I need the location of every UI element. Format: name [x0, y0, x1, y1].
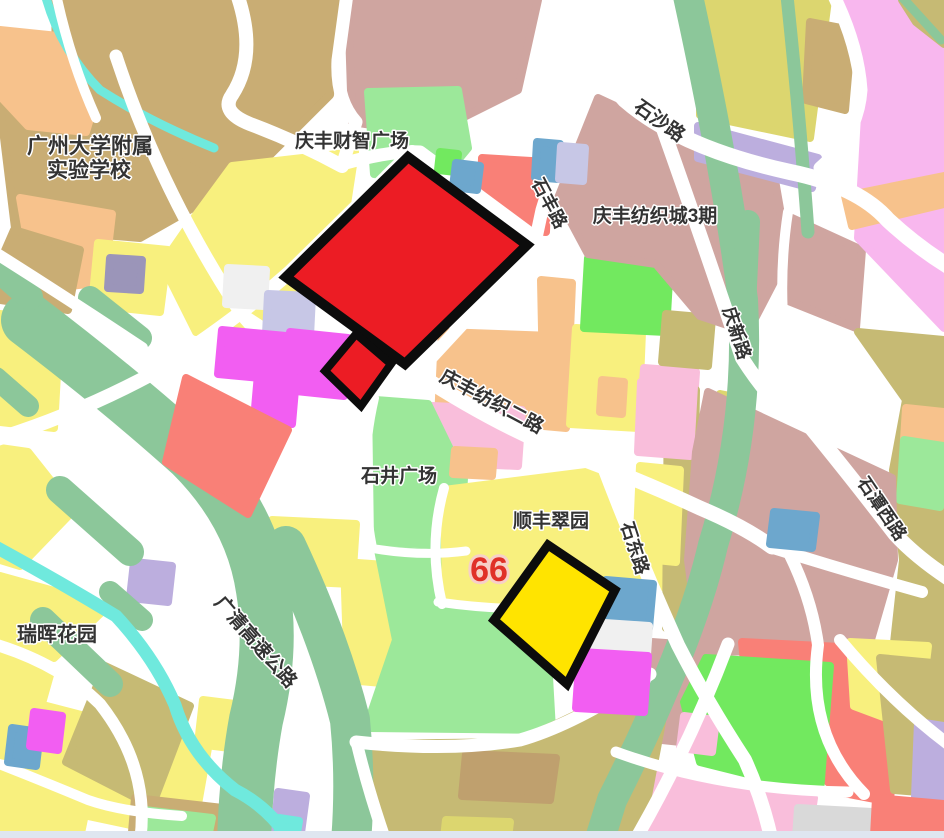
- parcel: [662, 314, 712, 366]
- road: [782, 212, 788, 332]
- parcel: [900, 440, 943, 507]
- parcel: [226, 268, 266, 306]
- label-school-line1: 广州大学附属: [27, 134, 153, 158]
- parcel: [559, 146, 585, 181]
- bottom-edge-strip: [0, 831, 944, 838]
- parcel: [30, 712, 62, 750]
- label-shunfeng-cuiyuan: 顺丰翠园: [513, 509, 589, 532]
- parcel: [576, 652, 648, 712]
- label-school-line2: 实验学校: [47, 158, 132, 182]
- zoning-map[interactable]: 广州大学附属 实验学校 庆丰财智广场 石沙路 庆丰纺织城3期 石丰路 庆新路 庆…: [0, 0, 944, 838]
- parcel: [108, 258, 142, 290]
- map-viewport: 广州大学附属 实验学校 庆丰财智广场 石沙路 庆丰纺织城3期 石丰路 庆新路 庆…: [0, 0, 944, 838]
- parcel: [638, 382, 694, 456]
- label-ruihui-garden: 瑞晖花园: [17, 623, 97, 646]
- parcel: [453, 450, 494, 476]
- label-qingfeng-textile-city-phase3: 庆丰纺织城3期: [593, 204, 718, 227]
- label-qingfeng-caizhi-plaza: 庆丰财智广场: [295, 129, 409, 152]
- road: [370, 548, 466, 553]
- parcel: [770, 512, 816, 548]
- parcel: [453, 163, 480, 190]
- parcel: [600, 380, 624, 414]
- parcel: [130, 562, 172, 602]
- parcel-number-66: 66: [470, 551, 508, 589]
- label-shijing-plaza: 石井广场: [360, 464, 437, 487]
- parcel: [462, 754, 556, 800]
